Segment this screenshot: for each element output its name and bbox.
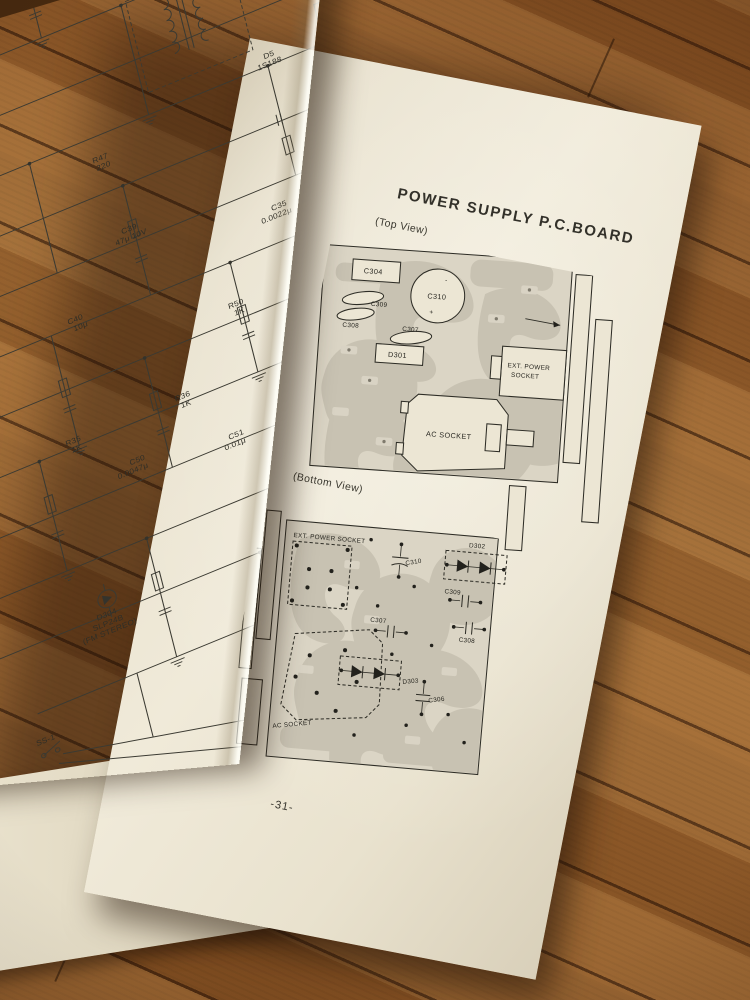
svg-text:C309: C309 [371,301,388,309]
schematic-label: C35 [270,198,288,212]
schematic-label: SS-1 [35,732,56,748]
transformer-t7 [125,0,252,93]
svg-text:C309: C309 [444,588,461,596]
schematic-label: 0.0022μ [260,205,292,226]
pcb-bottom-view-diagram: EXT. POWER SOCKET C310 D302 [215,494,548,820]
svg-text:D303: D303 [402,678,419,686]
page-number: -31- [232,791,332,822]
component-c304: C304 [352,259,401,283]
svg-text:C308: C308 [458,637,475,645]
svg-text:C307: C307 [370,617,387,625]
svg-text:C310: C310 [427,291,447,301]
svg-text:D302: D302 [469,542,486,550]
page-title: POWER SUPPLY P.C.BOARD [382,182,650,250]
photo-of-open-service-manual: { "book": { "right_page": { "title": "PO… [0,0,750,1000]
svg-text:-: - [445,277,448,284]
schematic-label: 0.01μ [224,436,247,453]
svg-text:C308: C308 [342,322,359,330]
svg-text:D301: D301 [388,350,408,360]
component-d301: D301 [375,344,424,366]
plank-joint [587,38,615,97]
svg-text:+: + [429,309,434,316]
svg-text:C307: C307 [402,326,419,334]
svg-text:C304: C304 [364,266,384,276]
